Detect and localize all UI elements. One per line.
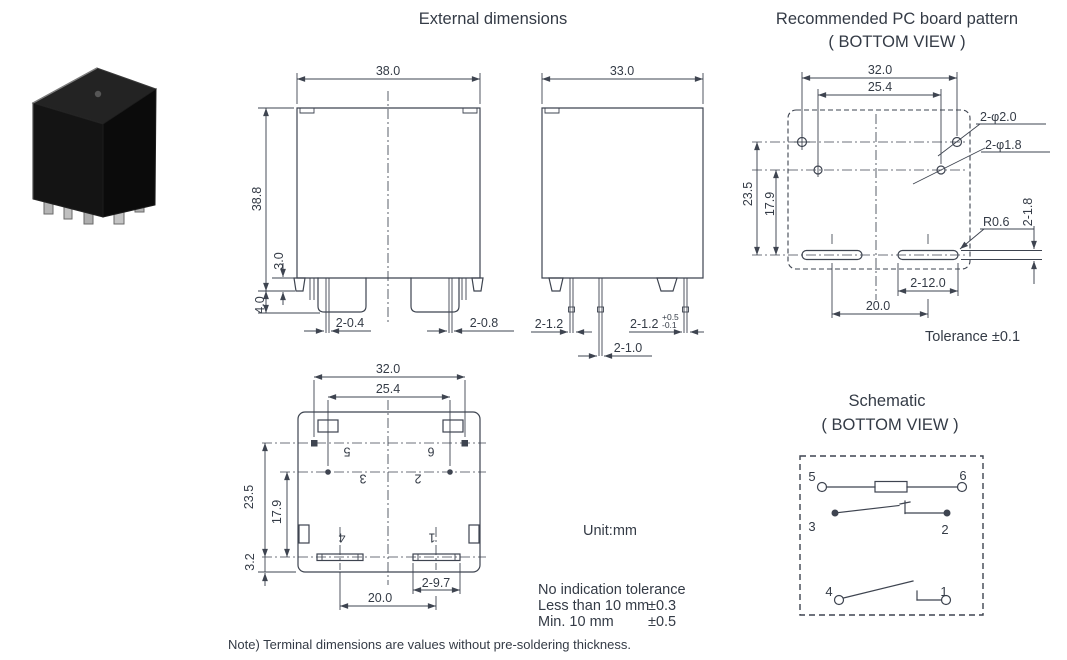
pcb-tolerance-note: Tolerance ±0.1 [925,329,1020,345]
schematic-pin2-label: 2 [941,522,948,537]
side-view-drawing: 33.0 2-1.2 2-1.2 +0.5 -0.1 2-1.0 [531,64,704,356]
front-pin-thin-dim: 2-0.4 [336,316,365,330]
schematic-pin6-label: 6 [959,468,966,483]
tolerance-row2-label: Min. 10 mm [538,614,614,630]
pcb-slot-height-dim: 2-1.8 [1021,198,1035,227]
pcb-slot-radius-dim: R0.6 [983,215,1009,229]
pcb-hole-coil-dim: 2-φ2.0 [980,110,1017,124]
front-height-dim: 38.8 [250,187,264,211]
bottom-height1-dim: 23.5 [242,485,256,509]
schematic-drawing: 5 6 3 2 4 1 [800,456,983,615]
pcb-height2-dim: 17.9 [763,192,777,216]
pcb-height1-dim: 23.5 [741,182,755,206]
bottom-width-outer-dim: 32.0 [376,362,400,376]
external-dimensions-title: External dimensions [419,10,568,28]
bottom-pin2-label: 2 [414,472,421,486]
bottom-pitch-dim: 20.0 [368,591,392,605]
pcb-hole-contact-dim: 2-φ1.8 [985,138,1022,152]
tolerance-row1-value: ±0.3 [648,598,676,614]
footnote: Note) Terminal dimensions are values wit… [228,637,631,652]
bottom-width-inner-dim: 25.4 [376,382,400,396]
side-pin-center-dim: 2-1.0 [614,341,643,355]
bottom-pin3-label: 3 [359,472,366,486]
bottom-view-drawing: 32.0 25.4 23.5 17.9 3.2 5 6 3 2 4 1 2-9.… [242,362,486,610]
bottom-pin6-label: 6 [427,445,434,459]
side-pin-right-tol-minus: -0.1 [662,320,677,330]
notes-block: Unit:mm No indication tolerance Less tha… [228,523,686,652]
schematic-title: Schematic [848,392,925,410]
front-standoff-dim: 3.0 [272,252,286,269]
tolerance-row2-value: ±0.5 [648,614,676,630]
bottom-pin1-label: 1 [428,531,435,545]
front-width-dim: 38.0 [376,64,400,78]
pcb-width-outer-dim: 32.0 [868,63,892,77]
unit-note: Unit:mm [583,523,637,539]
relay-mold-mark [95,91,101,97]
bottom-pin5-label: 5 [343,445,350,459]
bottom-height2-dim: 17.9 [270,500,284,524]
bottom-slot-length-dim: 2-9.7 [422,576,451,590]
pcb-slot-length-dim: 2-12.0 [910,276,945,290]
relay-datasheet-drawing: External dimensions Recommended PC board… [0,0,1067,660]
bottom-height3-dim: 3.2 [243,553,257,570]
schematic-pin3-label: 3 [808,519,815,534]
pcb-pitch-dim: 20.0 [866,299,890,313]
relay-photo [33,68,156,224]
tolerance-title: No indication tolerance [538,582,686,598]
side-width-dim: 33.0 [610,64,634,78]
tolerance-row1-label: Less than 10 mm [538,598,649,614]
schematic-pin1-label: 1 [940,584,947,599]
schematic-pin5-label: 5 [808,469,815,484]
bottom-pin4-label: 4 [338,531,345,545]
front-pin-thick-dim: 2-0.8 [470,316,499,330]
side-pin-left-dim: 2-1.2 [535,317,564,331]
schematic-pin4-label: 4 [825,584,832,599]
pcb-pattern-drawing: 32.0 25.4 2-φ2.0 2-φ1.8 23.5 17.9 R0 [741,63,1050,345]
pcb-width-inner-dim: 25.4 [868,80,892,94]
pcb-pattern-title: Recommended PC board pattern [776,10,1018,28]
front-view-drawing: 38.0 38.8 3.0 4.0 2-0.4 2-0.8 [250,64,514,333]
front-terminal-length-dim: 4.0 [253,296,267,313]
schematic-subtitle: ( BOTTOM VIEW ) [821,416,958,434]
side-pin-right-dim: 2-1.2 [630,317,659,331]
pcb-pattern-subtitle: ( BOTTOM VIEW ) [828,33,965,51]
